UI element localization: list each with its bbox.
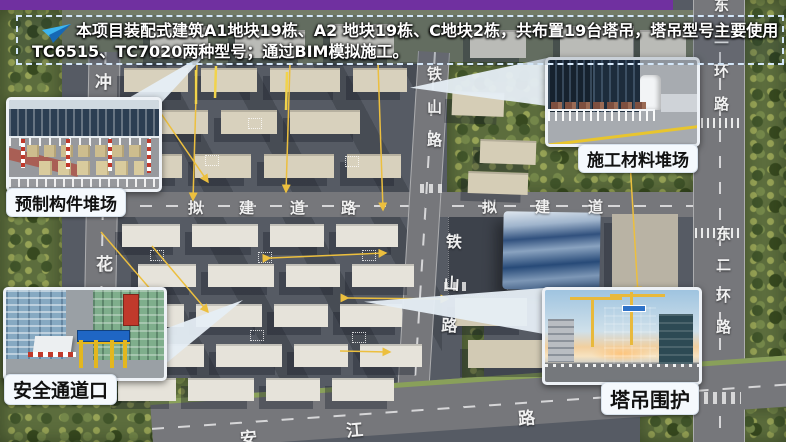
road-label-left-char-1: 冲 <box>95 68 112 93</box>
photo-detail <box>548 109 655 121</box>
building <box>332 378 394 401</box>
construction-bim-slide: 铁山路 铁山路 拟建道路 拟建道 冲 花 东二环路 东二环路 安 江 路 <box>0 0 786 442</box>
ground-mark <box>250 330 264 341</box>
material-yard-photo <box>545 57 700 147</box>
crosswalk <box>420 184 446 193</box>
building <box>188 378 254 401</box>
building <box>270 224 324 247</box>
building <box>352 264 414 287</box>
photo-detail <box>661 94 697 112</box>
ground-mark <box>362 250 376 261</box>
road-label-bottom-char-2: 江 <box>345 415 364 441</box>
photo-detail <box>9 100 159 109</box>
project-description-line1: 本项目装配式建筑A1地块19栋、A2 地块19栋、C地块2栋，共布置19台塔吊，… <box>18 20 786 41</box>
crane-enclosure-photo <box>542 287 702 385</box>
photo-detail <box>66 139 70 169</box>
photo-detail <box>28 352 75 357</box>
building <box>122 224 180 247</box>
building <box>201 68 257 92</box>
ground-mark <box>345 156 359 167</box>
building <box>340 304 402 327</box>
building <box>216 344 282 367</box>
building <box>480 139 537 165</box>
building <box>138 264 196 287</box>
ground-mark <box>352 332 366 343</box>
building <box>290 110 360 134</box>
building <box>270 68 340 92</box>
photo-detail <box>659 314 693 364</box>
photo-detail <box>39 161 144 175</box>
road-label-east-ring-lower: 东二环路 <box>713 226 734 350</box>
label-safety-gate: 安全通道口 <box>4 374 117 405</box>
photo-detail <box>123 340 127 368</box>
top-purple-bar <box>0 0 673 10</box>
photo-detail <box>110 340 114 368</box>
precast-yard-photo <box>6 97 162 192</box>
photo-detail <box>123 294 139 326</box>
arrow-icon <box>42 24 72 44</box>
building <box>294 344 348 367</box>
ground-mark <box>248 118 262 129</box>
building <box>468 171 529 195</box>
ground-mark <box>150 250 164 261</box>
building <box>266 378 320 401</box>
ground-mark <box>258 252 272 263</box>
building <box>264 154 334 178</box>
photo-detail <box>79 340 83 368</box>
project-description-line2: TC6515、TC7020两种型号；通过BIM模拟施工。 <box>18 41 786 62</box>
building <box>192 224 258 247</box>
photo-detail <box>548 319 574 361</box>
road-label-proposed-left: 拟建道路 <box>188 197 392 218</box>
project-info-box: 本项目装配式建筑A1地块19栋、A2 地块19栋、C地块2栋，共布置19台塔吊，… <box>16 15 784 65</box>
label-precast-yard: 预制构件堆场 <box>6 188 126 217</box>
photo-detail <box>21 139 25 167</box>
tan-building <box>612 214 678 292</box>
photo-detail <box>591 297 594 347</box>
building <box>195 154 251 178</box>
photo-detail <box>77 330 130 342</box>
photo-detail <box>610 294 665 297</box>
building <box>353 68 407 92</box>
photo-detail <box>33 336 73 352</box>
safety-gate-photo <box>3 287 167 381</box>
crosswalk <box>695 392 741 404</box>
road-label-proposed-right: 拟建道 <box>482 196 641 217</box>
photo-detail <box>551 102 649 109</box>
photo-detail <box>108 139 112 171</box>
blue-roof-hall <box>502 211 600 291</box>
building <box>274 304 328 327</box>
photo-detail <box>94 340 98 368</box>
building <box>286 264 340 287</box>
building <box>336 224 398 247</box>
road-label-bottom-char-3: 路 <box>517 403 536 429</box>
photo-detail <box>147 139 151 173</box>
photo-detail <box>570 297 622 300</box>
tan-building <box>468 340 552 368</box>
building <box>118 378 176 401</box>
ground-mark <box>205 155 219 166</box>
photo-detail <box>622 305 646 313</box>
photo-detail <box>545 364 699 368</box>
photo-detail <box>9 109 159 136</box>
photo-detail <box>630 292 633 345</box>
road-label-bottom-char-1: 安 <box>239 423 258 442</box>
road-label-left-char-2: 花 <box>96 250 113 275</box>
photo-detail <box>27 145 141 157</box>
label-crane-enclosure: 塔吊围护 <box>601 382 699 415</box>
building <box>360 344 422 367</box>
label-material-yard: 施工材料堆场 <box>578 144 698 173</box>
building <box>208 264 274 287</box>
photo-detail <box>9 177 159 188</box>
